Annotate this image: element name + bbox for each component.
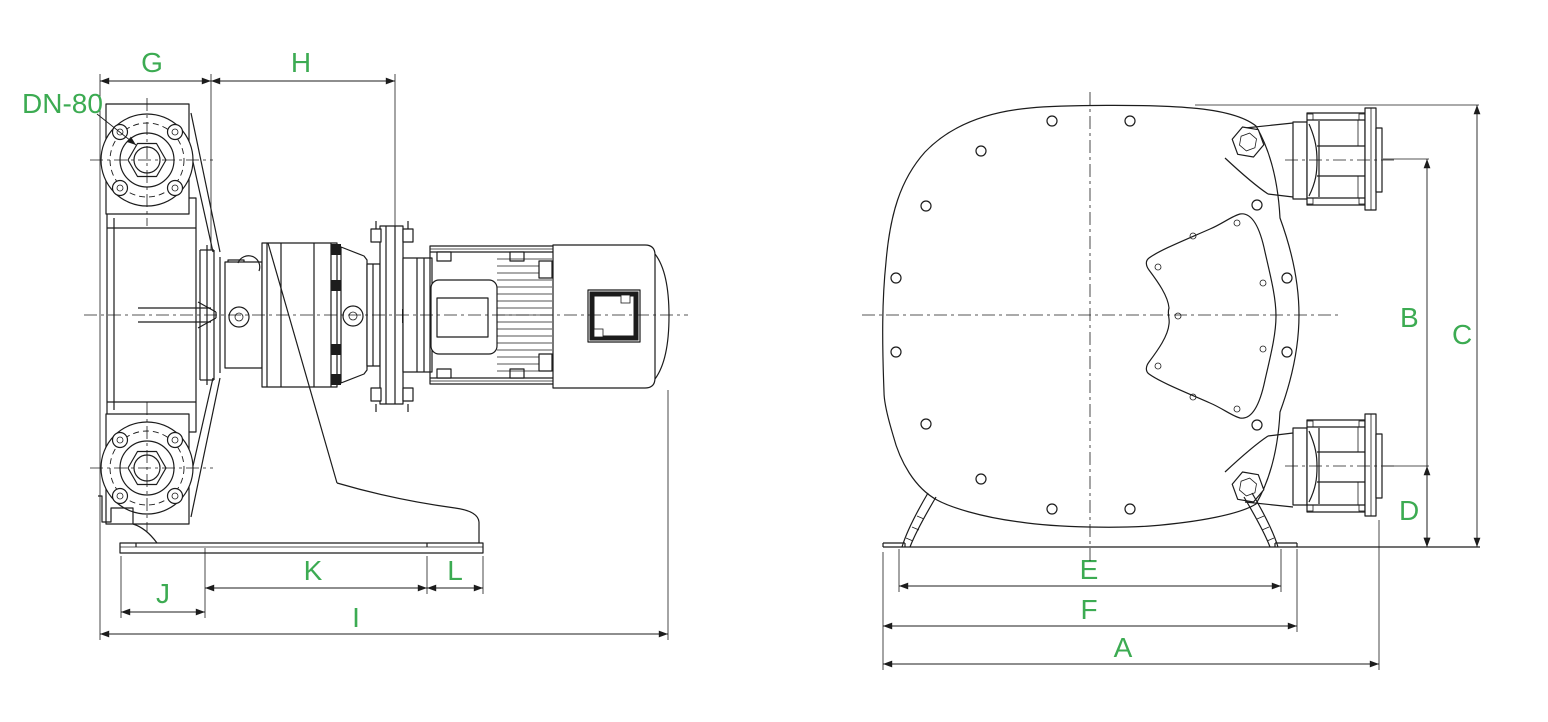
port-size-label: DN-80 bbox=[22, 88, 103, 119]
dim-label-a: A bbox=[1114, 632, 1133, 663]
dim-label-c: C bbox=[1452, 319, 1472, 350]
hose-port-bottom bbox=[1293, 414, 1382, 516]
technical-drawing: G H DN-80 J K L I bbox=[0, 0, 1548, 722]
drawing-canvas: G H DN-80 J K L I bbox=[0, 0, 1548, 722]
gearbox bbox=[225, 221, 432, 412]
motor bbox=[430, 245, 669, 388]
dim-label-f: F bbox=[1080, 594, 1097, 625]
dim-label-k: K bbox=[304, 555, 323, 586]
dim-label-g: G bbox=[141, 47, 163, 78]
dim-label-l: L bbox=[447, 555, 463, 586]
dim-label-i: I bbox=[352, 602, 360, 633]
dim-label-e: E bbox=[1080, 554, 1099, 585]
dim-label-h: H bbox=[291, 47, 311, 78]
front-view: B C D E F A bbox=[883, 105, 1480, 670]
terminal-box bbox=[588, 290, 640, 342]
dim-label-j: J bbox=[156, 578, 170, 609]
hose-port-top bbox=[1293, 108, 1382, 210]
dim-label-b: B bbox=[1400, 302, 1419, 333]
side-view: G H DN-80 J K L I bbox=[22, 47, 669, 640]
pump-housing bbox=[883, 105, 1299, 527]
dim-label-d: D bbox=[1399, 495, 1419, 526]
